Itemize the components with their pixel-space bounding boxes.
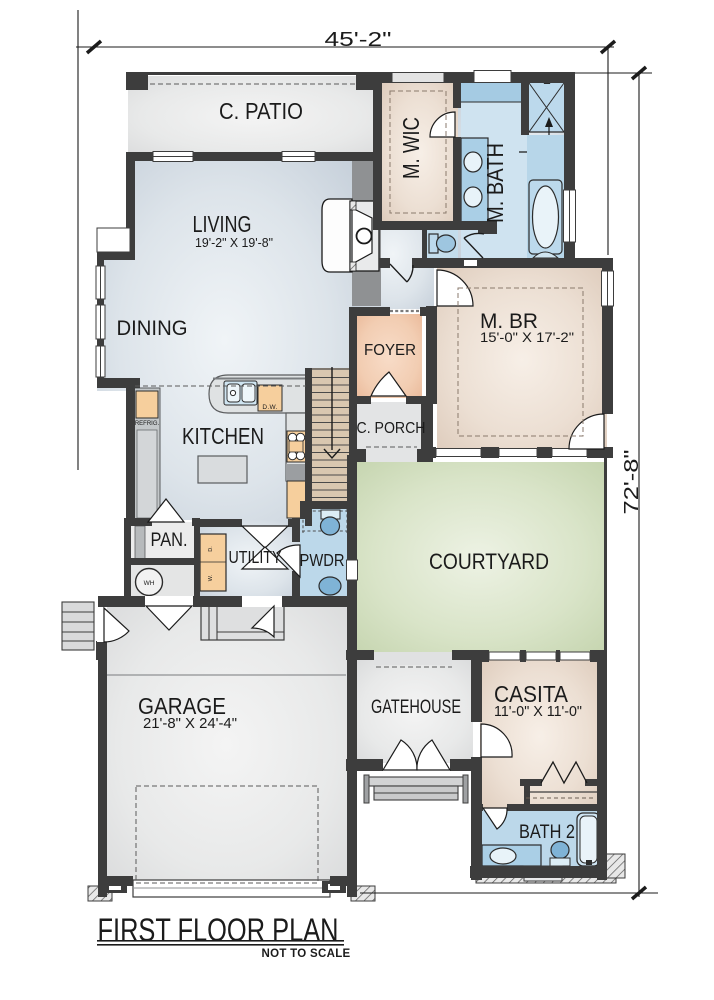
svg-text:D.: D. bbox=[208, 546, 214, 552]
svg-text:UTILITY: UTILITY bbox=[229, 547, 282, 567]
svg-text:19'-2" X 19'-8": 19'-2" X 19'-8" bbox=[195, 235, 273, 250]
svg-text:DINING: DINING bbox=[117, 317, 188, 340]
svg-text:REFRIG.: REFRIG. bbox=[135, 421, 160, 427]
svg-text:GATEHOUSE: GATEHOUSE bbox=[371, 696, 461, 718]
svg-text:45'-2": 45'-2" bbox=[325, 29, 392, 51]
svg-text:M. BATH: M. BATH bbox=[482, 143, 508, 223]
svg-text:KITCHEN: KITCHEN bbox=[182, 423, 264, 449]
svg-text:BATH 2: BATH 2 bbox=[519, 822, 575, 843]
svg-text:PAN.: PAN. bbox=[151, 530, 188, 551]
svg-text:WH: WH bbox=[144, 580, 155, 587]
svg-text:PWDR: PWDR bbox=[300, 550, 345, 570]
svg-text:FIRST FLOOR PLAN: FIRST FLOOR PLAN bbox=[98, 912, 339, 948]
svg-text:COURTYARD: COURTYARD bbox=[429, 549, 549, 574]
svg-text:C. PORCH: C. PORCH bbox=[357, 420, 426, 437]
svg-text:11'-0" X 11'-0": 11'-0" X 11'-0" bbox=[494, 703, 582, 720]
svg-text:15'-0" X 17'-2": 15'-0" X 17'-2" bbox=[480, 329, 574, 345]
svg-text:NOT TO SCALE: NOT TO SCALE bbox=[261, 948, 350, 960]
svg-text:D.W.: D.W. bbox=[262, 404, 277, 411]
svg-text:M. WIC: M. WIC bbox=[398, 117, 424, 179]
svg-text:W.: W. bbox=[208, 574, 214, 581]
svg-text:21'-8" X 24'-4": 21'-8" X 24'-4" bbox=[143, 716, 237, 732]
svg-text:72'-8": 72'-8" bbox=[621, 450, 643, 515]
svg-text:FOYER: FOYER bbox=[364, 342, 416, 359]
svg-text:C. PATIO: C. PATIO bbox=[219, 98, 303, 124]
svg-text:LIVING: LIVING bbox=[193, 211, 252, 237]
